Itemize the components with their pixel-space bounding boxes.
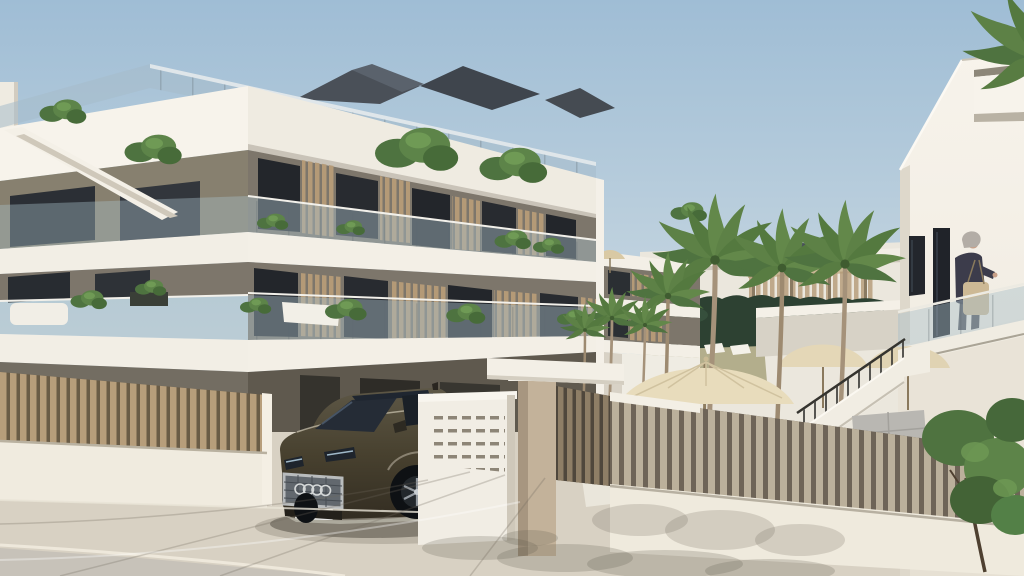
- gate-door-slats: [556, 386, 610, 486]
- street-fence: [0, 372, 272, 508]
- render-canvas: [0, 0, 1024, 576]
- fence-end-cap: [262, 393, 272, 506]
- outdoor-sofa-left: [10, 303, 68, 325]
- scene: [0, 0, 1024, 576]
- letterbox-vents: [433, 413, 505, 472]
